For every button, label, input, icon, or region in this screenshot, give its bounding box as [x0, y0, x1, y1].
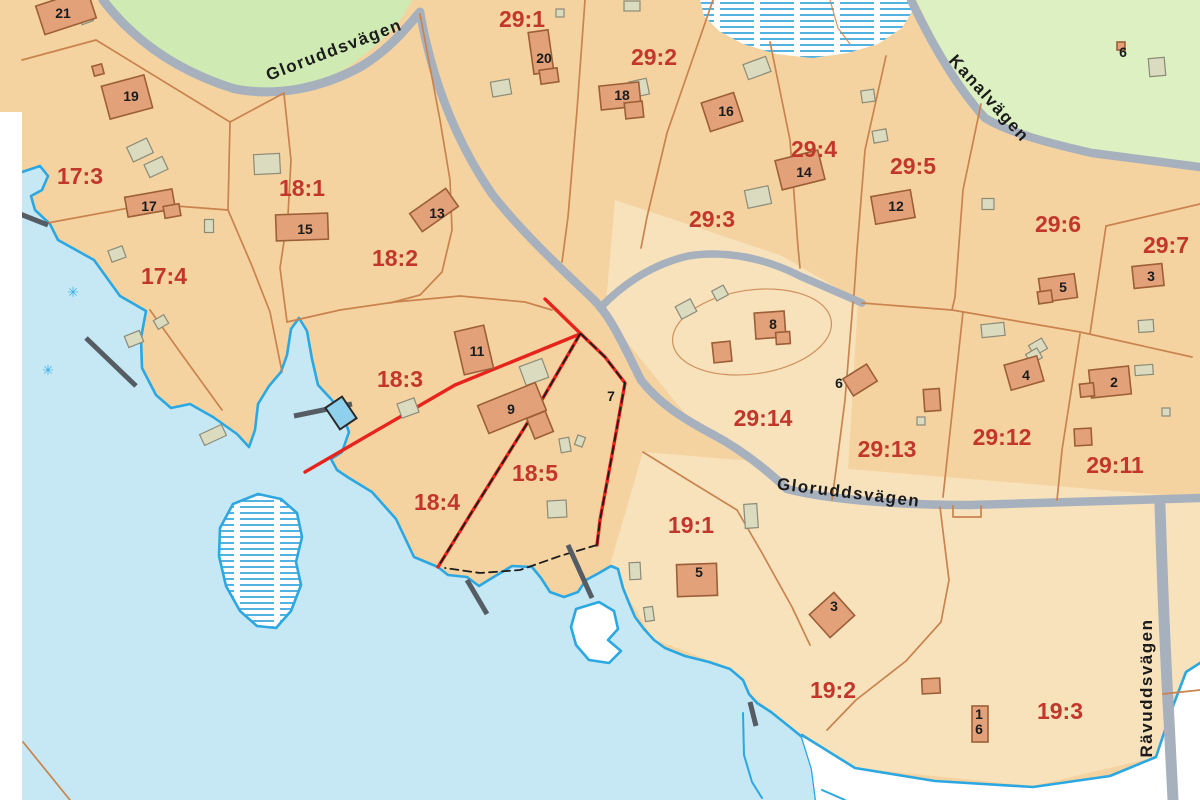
- house-number: 17: [141, 198, 157, 214]
- parcel-label: 29:11: [1086, 452, 1144, 478]
- parcel-label: 29:1: [499, 6, 545, 32]
- house-number: 6: [1119, 44, 1127, 60]
- outbuilding: [205, 220, 214, 233]
- parcel-label: 18:2: [372, 245, 418, 271]
- parcel-label: 18:1: [279, 175, 325, 201]
- parcel-label: 19:1: [668, 512, 714, 538]
- house-number: 15: [297, 221, 313, 237]
- house-number: 6: [835, 375, 843, 391]
- parcel-label: 19:3: [1037, 698, 1083, 724]
- house-number: 5: [695, 564, 703, 580]
- outbuilding: [559, 437, 571, 453]
- outbuilding: [744, 504, 759, 529]
- outbuilding: [1148, 57, 1166, 76]
- outbuilding: [1135, 364, 1154, 375]
- parcel-label: 29:12: [973, 424, 1032, 450]
- building: [1074, 428, 1092, 446]
- outbuilding: [1162, 408, 1170, 416]
- parcel-label: 19:2: [810, 677, 856, 703]
- house-number: 12: [888, 198, 904, 214]
- reed-symbol-icon: ✳: [67, 284, 79, 300]
- house-number: 2: [1110, 374, 1118, 390]
- outbuilding: [1138, 319, 1154, 332]
- outbuilding: [644, 606, 655, 621]
- parcel-label: 29:2: [631, 44, 677, 70]
- house-number: 3: [830, 598, 838, 614]
- house-number: 8: [769, 316, 777, 332]
- building: [539, 68, 559, 84]
- building: [712, 341, 732, 363]
- building: [776, 332, 791, 345]
- outbuilding: [490, 79, 511, 97]
- outbuilding: [624, 1, 640, 11]
- house-number: 14: [796, 164, 812, 180]
- outbuilding: [861, 89, 876, 103]
- building: [92, 64, 104, 76]
- outbuilding: [556, 9, 564, 17]
- house-number: 5: [1059, 279, 1067, 295]
- parcel-label: 18:4: [414, 489, 460, 515]
- house-number: 6: [975, 721, 983, 737]
- reed-symbol-icon: ✳: [42, 362, 54, 378]
- house-number: 4: [1022, 367, 1030, 383]
- parcel-label: 17:4: [141, 263, 187, 289]
- house-number: 7: [607, 388, 615, 404]
- parcel-label: 29:13: [858, 436, 917, 462]
- parcel-label: 29:6: [1035, 211, 1081, 237]
- parcel-label: 29:5: [890, 153, 936, 179]
- page-margin: [0, 112, 22, 800]
- house-number: 3: [1147, 268, 1155, 284]
- outbuilding: [253, 153, 280, 174]
- parcel-label: 17:3: [57, 163, 103, 189]
- outbuilding: [982, 199, 994, 210]
- building: [1037, 290, 1053, 304]
- road-label: Rävuddsvägen: [1137, 619, 1156, 758]
- building: [1079, 383, 1094, 397]
- building: [624, 101, 644, 119]
- parcel-label: 18:5: [512, 460, 558, 486]
- map-canvas: ✳✳ 17:317:418:118:218:318:418:529:129:22…: [0, 0, 1200, 800]
- house-number: 1: [975, 706, 983, 722]
- house-number: 16: [718, 103, 734, 119]
- parcel-label: 29:14: [734, 405, 793, 431]
- parcel-label: 29:4: [791, 136, 837, 162]
- cadastral-map: ✳✳ 17:317:418:118:218:318:418:529:129:22…: [0, 0, 1200, 800]
- house-number: 18: [614, 87, 630, 103]
- outbuilding: [981, 322, 1005, 337]
- building: [163, 204, 181, 219]
- outbuilding: [917, 417, 925, 425]
- house-number: 19: [123, 88, 139, 104]
- house-number: 9: [507, 401, 515, 417]
- building: [922, 678, 941, 694]
- outbuilding: [547, 500, 567, 518]
- outbuilding: [872, 129, 888, 143]
- parcel-label: 29:3: [689, 206, 735, 232]
- building: [923, 388, 940, 411]
- house-number: 13: [429, 205, 445, 221]
- house-number: 11: [470, 343, 485, 359]
- parcel-label: 29:7: [1143, 232, 1189, 258]
- house-number: 20: [536, 50, 552, 66]
- house-number: 21: [55, 5, 71, 21]
- outbuilding: [629, 562, 641, 580]
- parcel-label: 18:3: [377, 366, 423, 392]
